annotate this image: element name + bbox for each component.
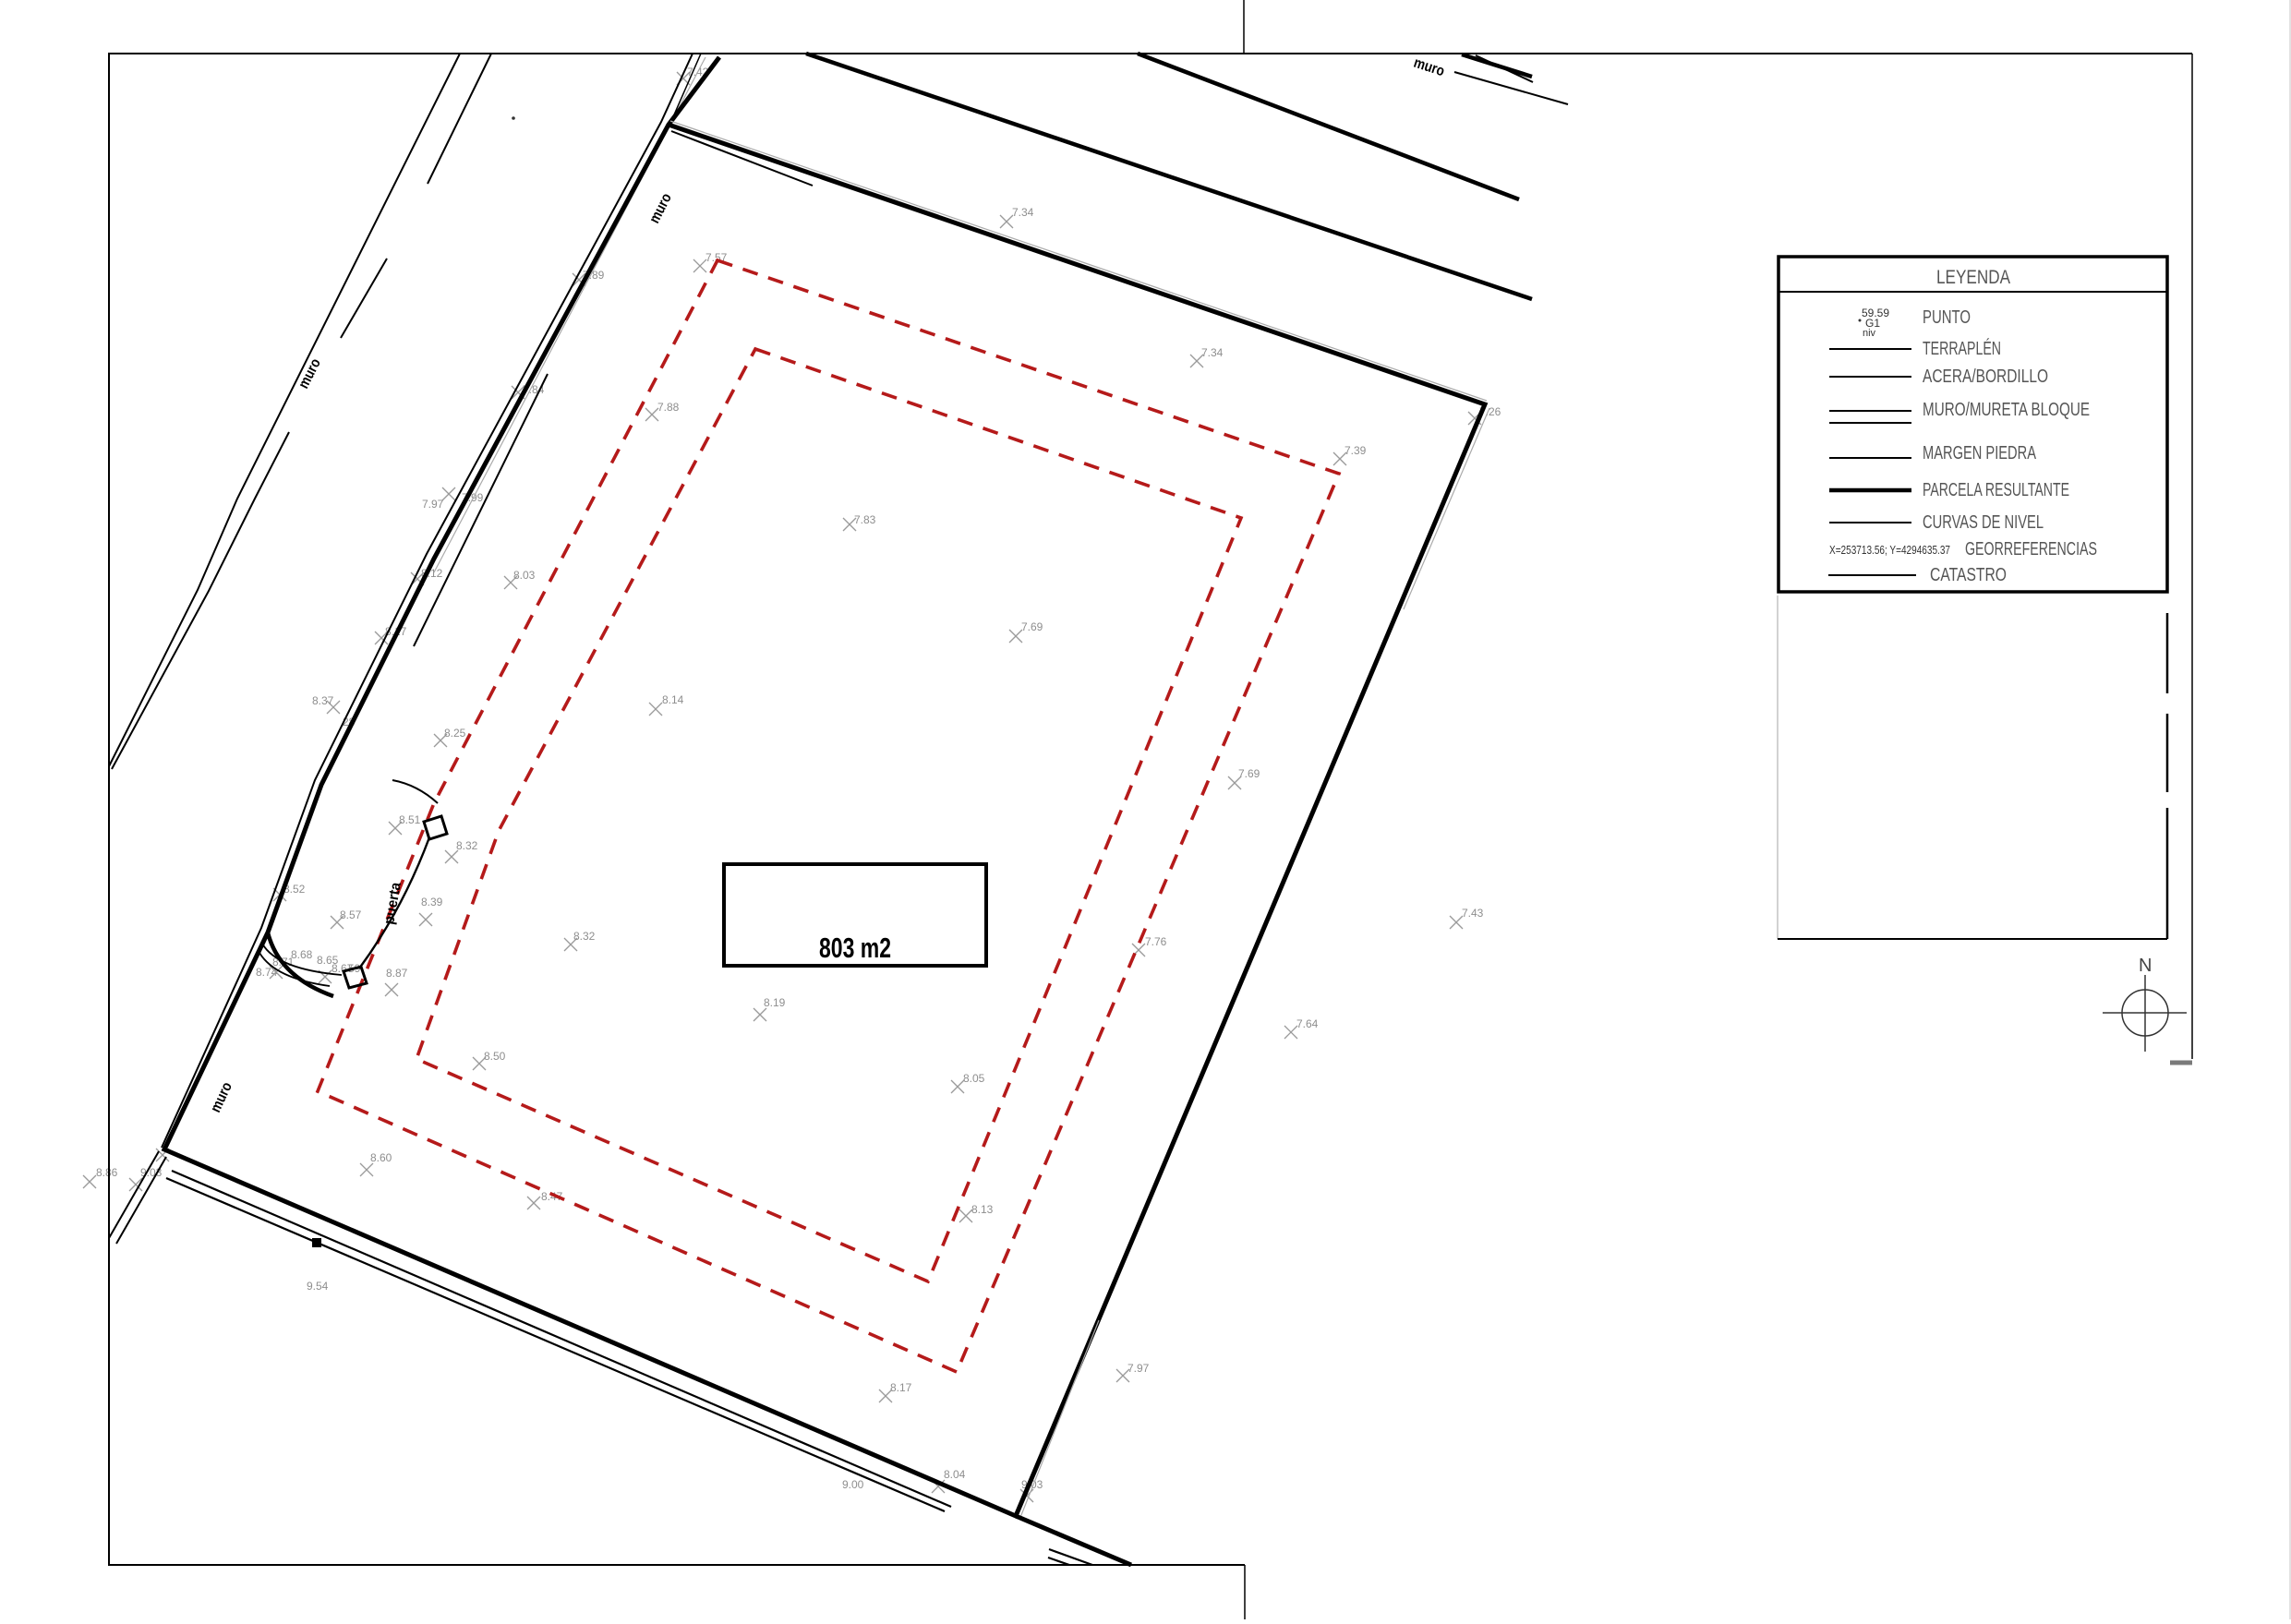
svg-text:MURO/MURETA BLOQUE: MURO/MURETA BLOQUE bbox=[1923, 400, 2090, 420]
svg-text:MARGEN PIEDRA: MARGEN PIEDRA bbox=[1923, 443, 2036, 463]
svg-text:7.97: 7.97 bbox=[1127, 1362, 1150, 1375]
svg-text:8.87: 8.87 bbox=[386, 967, 408, 980]
svg-text:8.04: 8.04 bbox=[944, 1468, 966, 1481]
svg-text:ACERA/BORDILLO: ACERA/BORDILLO bbox=[1923, 367, 2048, 387]
svg-text:8.17: 8.17 bbox=[890, 1381, 912, 1394]
svg-text:7.34: 7.34 bbox=[1012, 206, 1034, 219]
svg-text:7.64: 7.64 bbox=[1296, 1017, 1319, 1030]
svg-text:8.39: 8.39 bbox=[421, 896, 443, 908]
svg-text:LEYENDA: LEYENDA bbox=[1936, 267, 2010, 288]
svg-text:7.69: 7.69 bbox=[1238, 767, 1260, 780]
svg-text:7.88: 7.88 bbox=[657, 401, 680, 414]
svg-text:PARCELA RESULTANTE: PARCELA RESULTANTE bbox=[1923, 480, 2069, 500]
svg-text:CATASTRO: CATASTRO bbox=[1930, 565, 2007, 585]
svg-text:8.05: 8.05 bbox=[963, 1072, 985, 1085]
svg-text:8.50: 8.50 bbox=[484, 1050, 506, 1063]
svg-text:TERRAPLÉN: TERRAPLÉN bbox=[1923, 338, 2001, 359]
svg-text:niv: niv bbox=[1863, 328, 1876, 339]
svg-text:8.14: 8.14 bbox=[662, 693, 684, 706]
svg-text:X=253713.56; Y=4294635.37: X=253713.56; Y=4294635.37 bbox=[1829, 543, 1950, 557]
svg-text:8.32: 8.32 bbox=[456, 839, 478, 852]
svg-text:8.19: 8.19 bbox=[764, 996, 786, 1009]
svg-text:9.54: 9.54 bbox=[307, 1280, 329, 1293]
svg-text:8.32: 8.32 bbox=[573, 930, 596, 943]
svg-text:7.34: 7.34 bbox=[1201, 346, 1224, 359]
svg-text:7.39: 7.39 bbox=[1344, 444, 1367, 457]
svg-text:803 m2: 803 m2 bbox=[819, 932, 891, 964]
svg-text:GEORREFERENCIAS: GEORREFERENCIAS bbox=[1965, 539, 2097, 559]
svg-text:7.69: 7.69 bbox=[1021, 620, 1043, 633]
svg-text:CURVAS DE NIVEL: CURVAS DE NIVEL bbox=[1923, 512, 2044, 533]
svg-text:9.00: 9.00 bbox=[842, 1478, 864, 1491]
svg-text:8.86: 8.86 bbox=[96, 1166, 118, 1179]
svg-text:8.57: 8.57 bbox=[340, 908, 362, 921]
svg-text:8.37: 8.37 bbox=[312, 694, 334, 707]
svg-text:8.13: 8.13 bbox=[971, 1203, 994, 1216]
svg-text:8.51: 8.51 bbox=[399, 813, 421, 826]
svg-text:7.97: 7.97 bbox=[422, 498, 444, 511]
svg-text:7.43: 7.43 bbox=[1462, 907, 1484, 920]
svg-text:7.76: 7.76 bbox=[1145, 935, 1167, 948]
svg-text:7.83: 7.83 bbox=[854, 513, 876, 526]
svg-text:N: N bbox=[2139, 956, 2152, 976]
svg-text:8.25: 8.25 bbox=[444, 727, 466, 740]
svg-text:8.60: 8.60 bbox=[370, 1151, 392, 1164]
svg-text:PUNTO: PUNTO bbox=[1923, 307, 1971, 328]
svg-text:8.03: 8.03 bbox=[513, 569, 536, 582]
svg-text:8.68: 8.68 bbox=[291, 948, 313, 961]
